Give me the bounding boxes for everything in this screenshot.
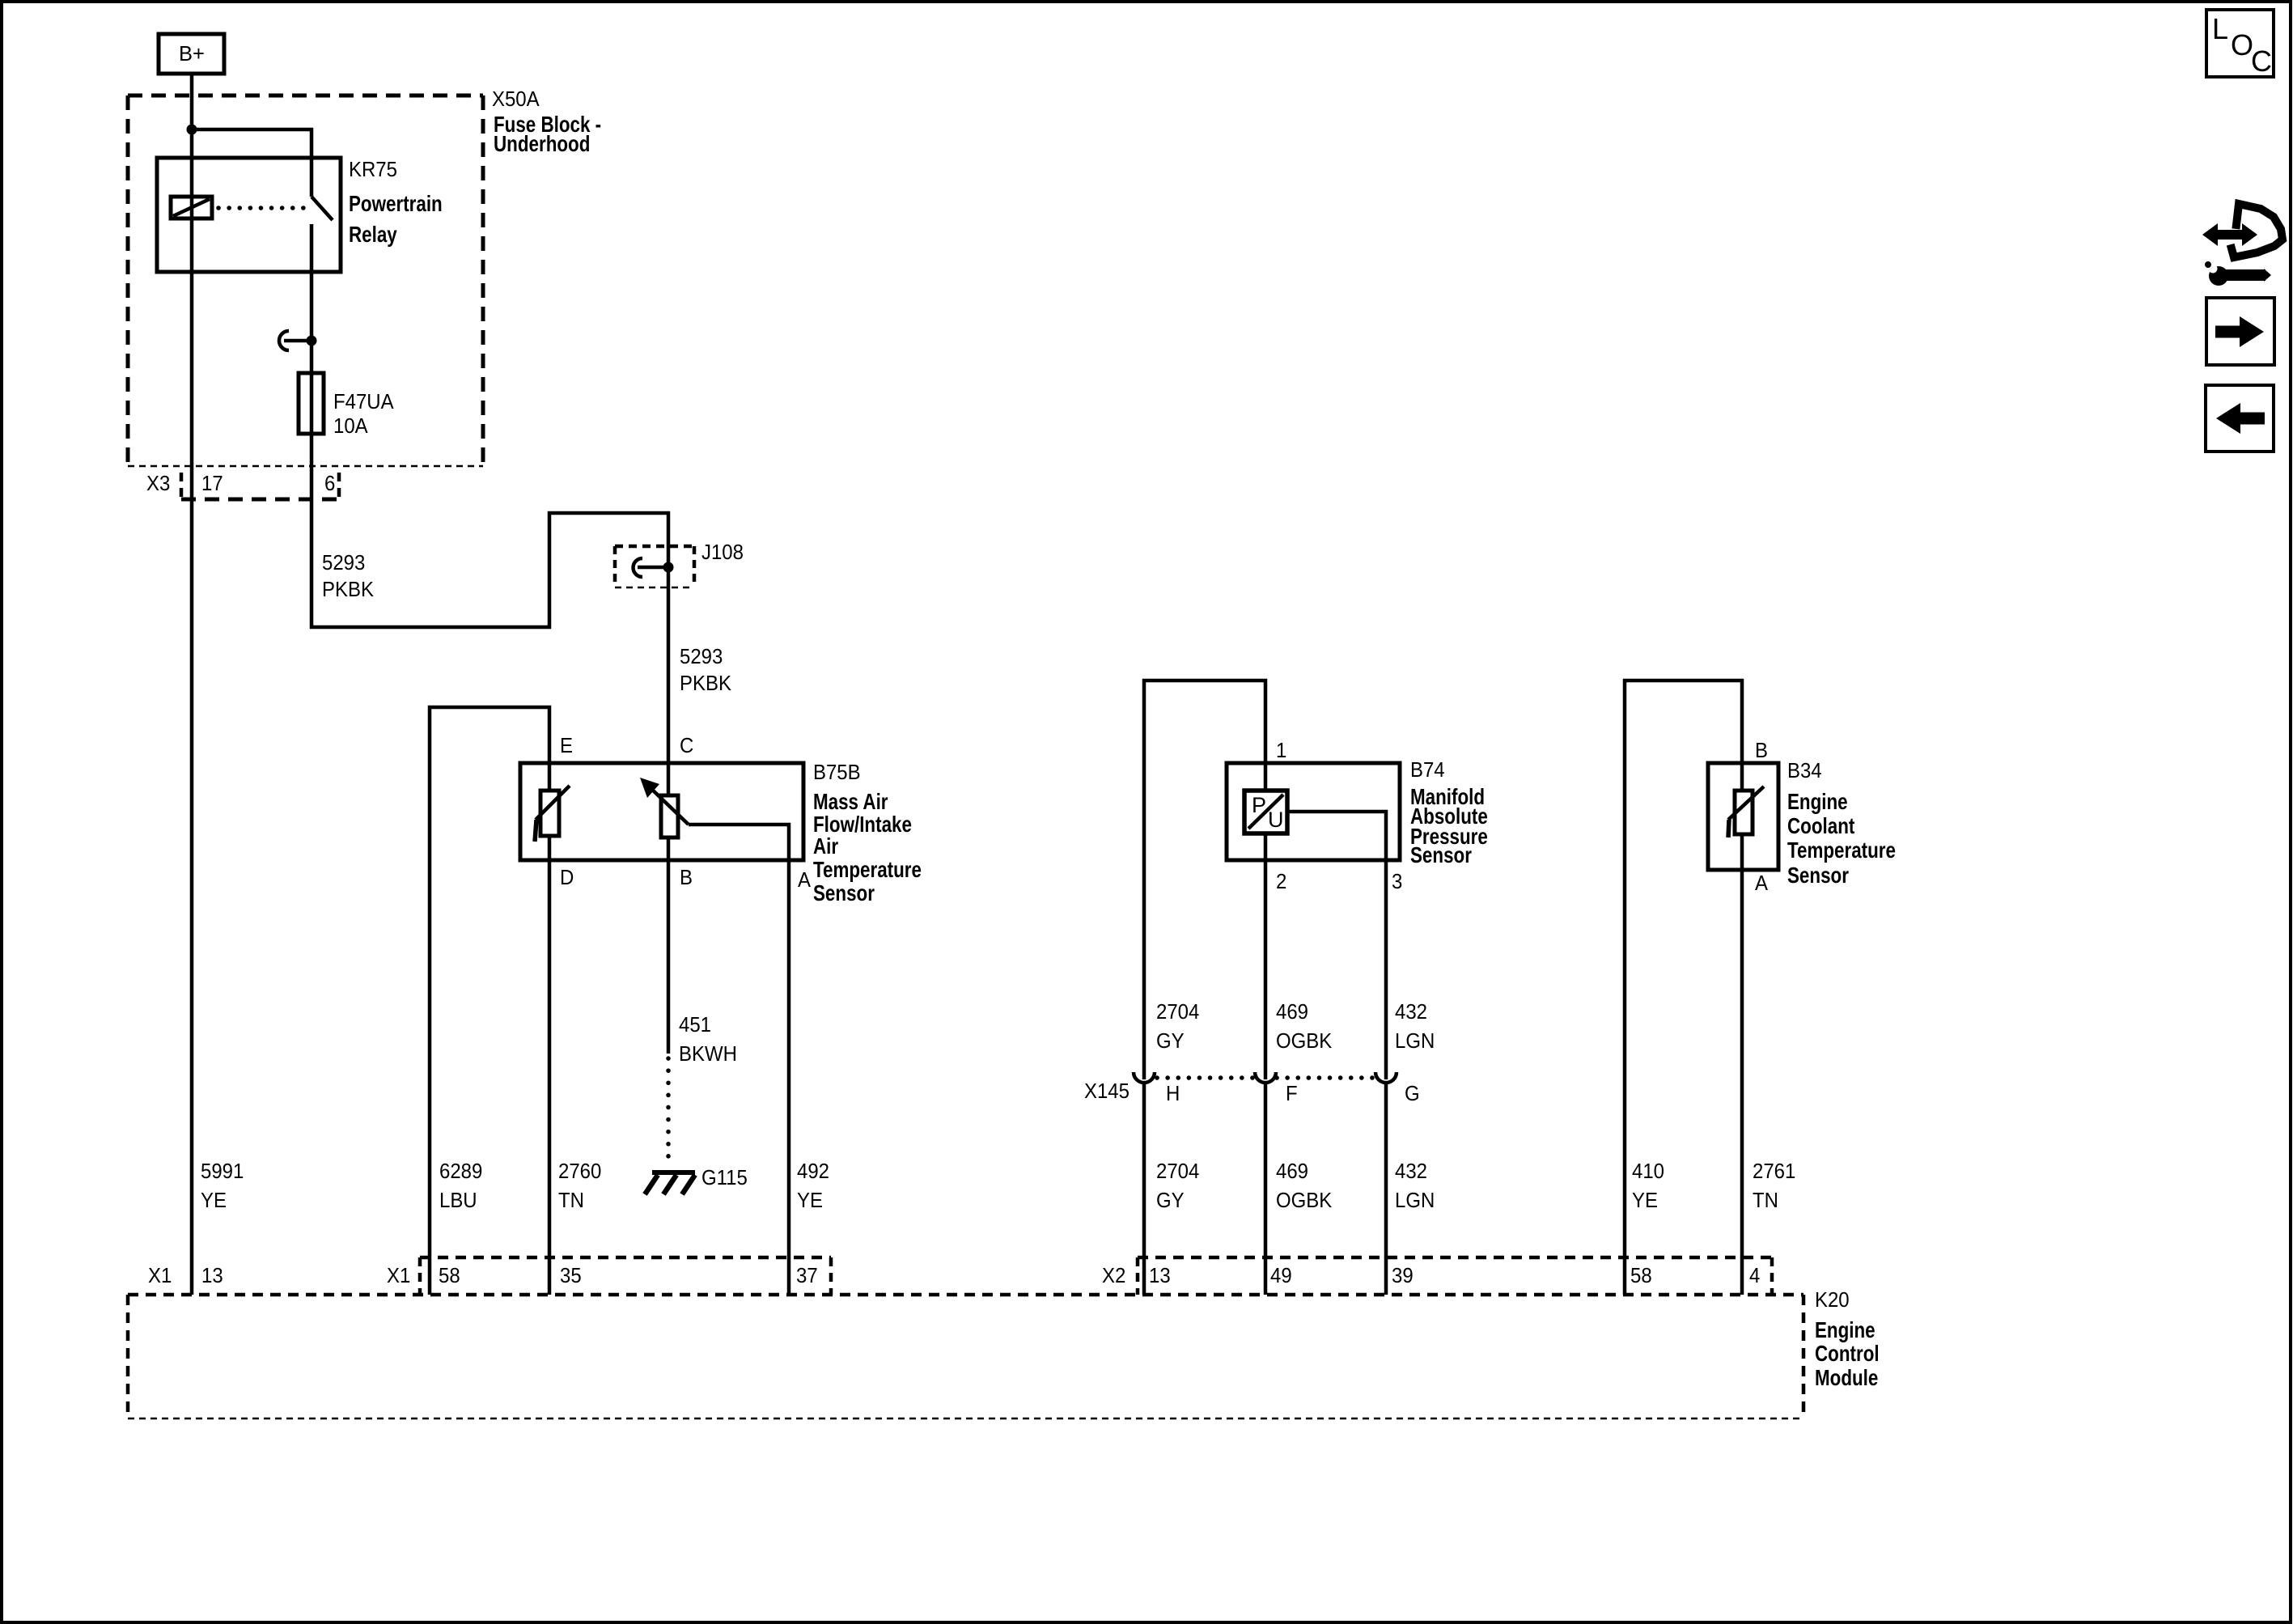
- svg-text:U: U: [1268, 808, 1284, 832]
- svg-text:10A: 10A: [333, 415, 368, 438]
- svg-text:PKBK: PKBK: [680, 672, 731, 695]
- svg-text:LGN: LGN: [1395, 1030, 1435, 1053]
- svg-text:58: 58: [439, 1265, 460, 1287]
- svg-text:X2: X2: [1102, 1265, 1125, 1287]
- svg-text:G115: G115: [701, 1167, 748, 1189]
- svg-text:Powertrain: Powertrain: [349, 192, 443, 217]
- svg-text:H: H: [1166, 1083, 1180, 1105]
- svg-text:C: C: [680, 735, 693, 757]
- svg-text:YE: YE: [797, 1189, 823, 1212]
- svg-text:Engine: Engine: [1787, 790, 1848, 815]
- svg-text:X1: X1: [148, 1265, 172, 1287]
- svg-text:39: 39: [1392, 1265, 1414, 1287]
- svg-text:C: C: [2251, 45, 2272, 78]
- svg-text:TN: TN: [558, 1189, 584, 1212]
- svg-text:B: B: [1755, 740, 1768, 762]
- svg-text:469: 469: [1276, 1001, 1308, 1024]
- svg-text:G: G: [1405, 1083, 1420, 1105]
- svg-text:469: 469: [1276, 1160, 1308, 1183]
- svg-text:6: 6: [324, 473, 335, 495]
- svg-text:O: O: [2231, 28, 2253, 61]
- svg-text:OGBK: OGBK: [1276, 1189, 1333, 1212]
- svg-text:2: 2: [1276, 871, 1286, 893]
- svg-text:X3: X3: [146, 473, 170, 495]
- svg-text:5293: 5293: [322, 552, 365, 575]
- svg-text:E: E: [560, 735, 573, 757]
- svg-text:Control: Control: [1815, 1342, 1880, 1367]
- svg-text:F47UA: F47UA: [333, 391, 394, 413]
- svg-text:Temperature: Temperature: [813, 858, 922, 883]
- svg-text:A: A: [1755, 872, 1768, 895]
- svg-text:Mass Air: Mass Air: [813, 790, 888, 815]
- svg-text:13: 13: [201, 1265, 223, 1287]
- svg-text:17: 17: [201, 473, 223, 495]
- svg-text:F: F: [1286, 1083, 1298, 1105]
- svg-text:KR75: KR75: [349, 159, 397, 181]
- svg-text:13: 13: [1149, 1265, 1171, 1287]
- svg-text:X50A: X50A: [492, 88, 540, 111]
- svg-text:Sensor: Sensor: [813, 881, 875, 906]
- svg-text:451: 451: [679, 1014, 711, 1037]
- svg-text:5293: 5293: [680, 646, 723, 668]
- svg-text:2760: 2760: [558, 1160, 601, 1183]
- svg-text:D: D: [560, 867, 574, 889]
- svg-text:K20: K20: [1815, 1289, 1850, 1312]
- svg-text:37: 37: [796, 1265, 818, 1287]
- svg-text:Relay: Relay: [349, 223, 397, 248]
- svg-text:B34: B34: [1787, 760, 1822, 782]
- svg-text:YE: YE: [201, 1189, 227, 1212]
- svg-text:Air: Air: [813, 834, 838, 859]
- svg-text:P: P: [1252, 793, 1266, 817]
- svg-text:B74: B74: [1410, 759, 1445, 782]
- svg-text:3: 3: [1392, 871, 1402, 893]
- svg-text:Module: Module: [1815, 1366, 1878, 1391]
- svg-text:OGBK: OGBK: [1276, 1030, 1333, 1053]
- svg-text:6289: 6289: [439, 1160, 482, 1183]
- svg-text:49: 49: [1270, 1265, 1292, 1287]
- svg-text:5991: 5991: [201, 1160, 244, 1183]
- svg-text:432: 432: [1395, 1160, 1427, 1183]
- svg-text:Underhood: Underhood: [494, 132, 590, 157]
- svg-text:1: 1: [1276, 740, 1286, 762]
- svg-text:LBU: LBU: [439, 1189, 477, 1212]
- svg-text:J108: J108: [701, 541, 744, 564]
- svg-text:TN: TN: [1753, 1189, 1778, 1212]
- svg-text:432: 432: [1395, 1001, 1427, 1024]
- svg-text:X145: X145: [1084, 1080, 1130, 1103]
- svg-text:B75B: B75B: [813, 761, 861, 784]
- svg-text:YE: YE: [1632, 1189, 1658, 1212]
- svg-text:PKBK: PKBK: [322, 579, 374, 601]
- svg-text:2704: 2704: [1156, 1160, 1200, 1183]
- svg-text:B: B: [680, 867, 693, 889]
- svg-text:A: A: [798, 869, 811, 892]
- svg-text:4: 4: [1749, 1265, 1761, 1287]
- svg-text:Engine: Engine: [1815, 1318, 1876, 1343]
- svg-text:X1: X1: [387, 1265, 410, 1287]
- svg-text:B+: B+: [179, 43, 205, 66]
- svg-text:BKWH: BKWH: [679, 1043, 737, 1066]
- svg-text:492: 492: [797, 1160, 829, 1183]
- svg-text:Temperature: Temperature: [1787, 838, 1896, 863]
- svg-text:GY: GY: [1156, 1189, 1185, 1212]
- svg-text:410: 410: [1632, 1160, 1664, 1183]
- svg-text:GY: GY: [1156, 1030, 1185, 1053]
- svg-text:Coolant: Coolant: [1787, 814, 1855, 839]
- svg-text:2761: 2761: [1753, 1160, 1795, 1183]
- svg-text:58: 58: [1630, 1265, 1652, 1287]
- svg-text:Sensor: Sensor: [1787, 863, 1849, 888]
- svg-text:LGN: LGN: [1395, 1189, 1435, 1212]
- svg-text:Sensor: Sensor: [1410, 843, 1472, 868]
- svg-text:35: 35: [560, 1265, 582, 1287]
- svg-text:2704: 2704: [1156, 1001, 1200, 1024]
- svg-text:L: L: [2212, 12, 2228, 45]
